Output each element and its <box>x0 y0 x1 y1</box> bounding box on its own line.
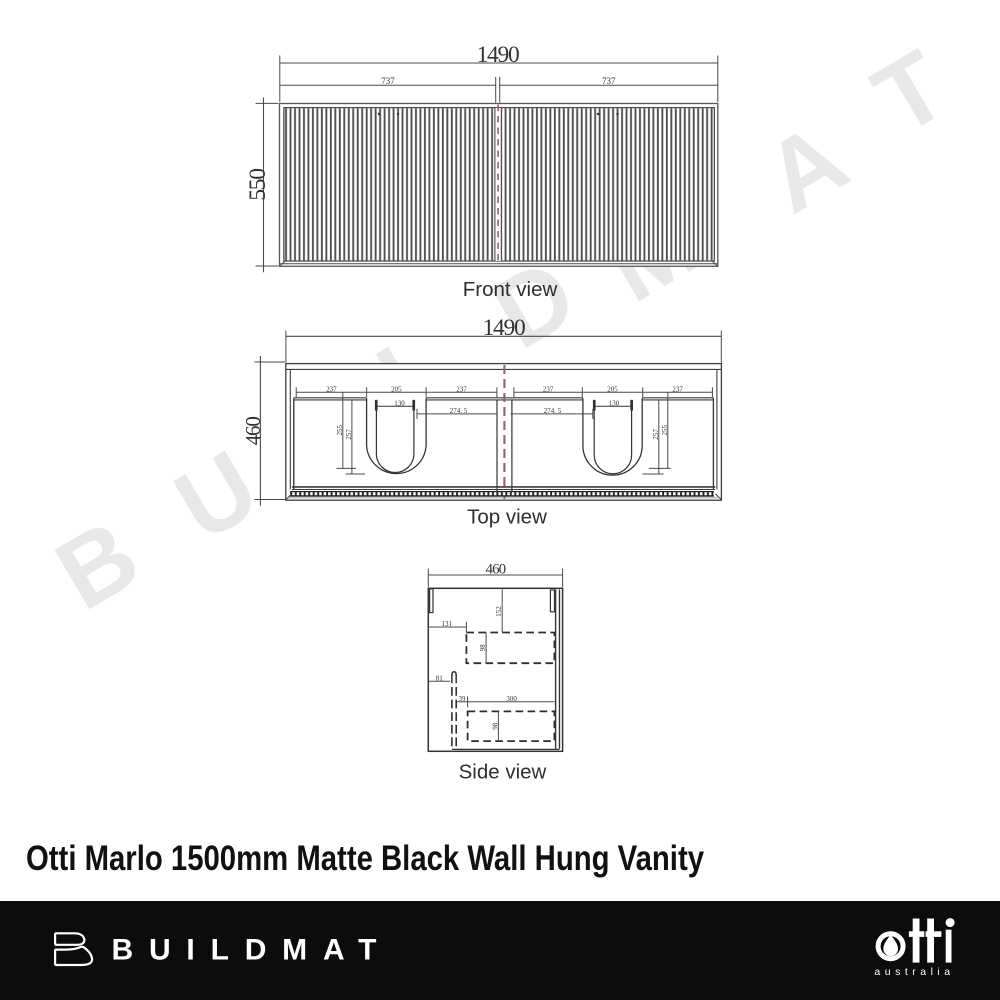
svg-text:257: 257 <box>345 429 353 440</box>
svg-text:Side view: Side view <box>459 760 547 783</box>
svg-text:98: 98 <box>491 722 499 730</box>
svg-text:1490: 1490 <box>477 42 519 68</box>
svg-text:Top view: Top view <box>467 506 547 529</box>
svg-text:255: 255 <box>661 425 669 436</box>
svg-text:255: 255 <box>336 425 344 436</box>
svg-text:237: 237 <box>672 385 683 393</box>
svg-text:U: U <box>157 429 276 562</box>
svg-text:81: 81 <box>436 675 444 683</box>
svg-text:130: 130 <box>394 399 405 407</box>
svg-text:237: 237 <box>543 385 554 393</box>
svg-text:Front view: Front view <box>463 278 558 301</box>
svg-text:98: 98 <box>479 644 487 652</box>
svg-text:550: 550 <box>245 169 271 201</box>
svg-text:BUILDMAT: BUILDMAT <box>112 934 393 967</box>
svg-text:130: 130 <box>609 399 620 407</box>
svg-text:152: 152 <box>495 606 503 617</box>
svg-text:460: 460 <box>485 562 505 578</box>
svg-text:300: 300 <box>506 695 517 703</box>
svg-text:T: T <box>856 29 965 157</box>
svg-text:205: 205 <box>607 385 618 393</box>
svg-text:39: 39 <box>459 695 467 703</box>
svg-text:737: 737 <box>381 76 395 86</box>
svg-text:257: 257 <box>652 429 660 440</box>
svg-text:274. 5: 274. 5 <box>450 407 468 415</box>
svg-text:460: 460 <box>241 417 265 446</box>
svg-text:237: 237 <box>456 385 467 393</box>
svg-text:Otti Marlo 1500mm Matte Black: Otti Marlo 1500mm Matte Black Wall Hung … <box>26 839 704 878</box>
svg-text:131: 131 <box>442 620 453 628</box>
svg-text:A: A <box>746 101 865 234</box>
svg-text:1490: 1490 <box>483 315 525 341</box>
svg-text:237: 237 <box>326 385 337 393</box>
svg-text:205: 205 <box>391 385 402 393</box>
svg-text:737: 737 <box>602 76 616 86</box>
svg-text:274. 5: 274. 5 <box>544 407 562 415</box>
svg-text:B: B <box>38 498 157 631</box>
svg-text:australia: australia <box>874 966 954 978</box>
